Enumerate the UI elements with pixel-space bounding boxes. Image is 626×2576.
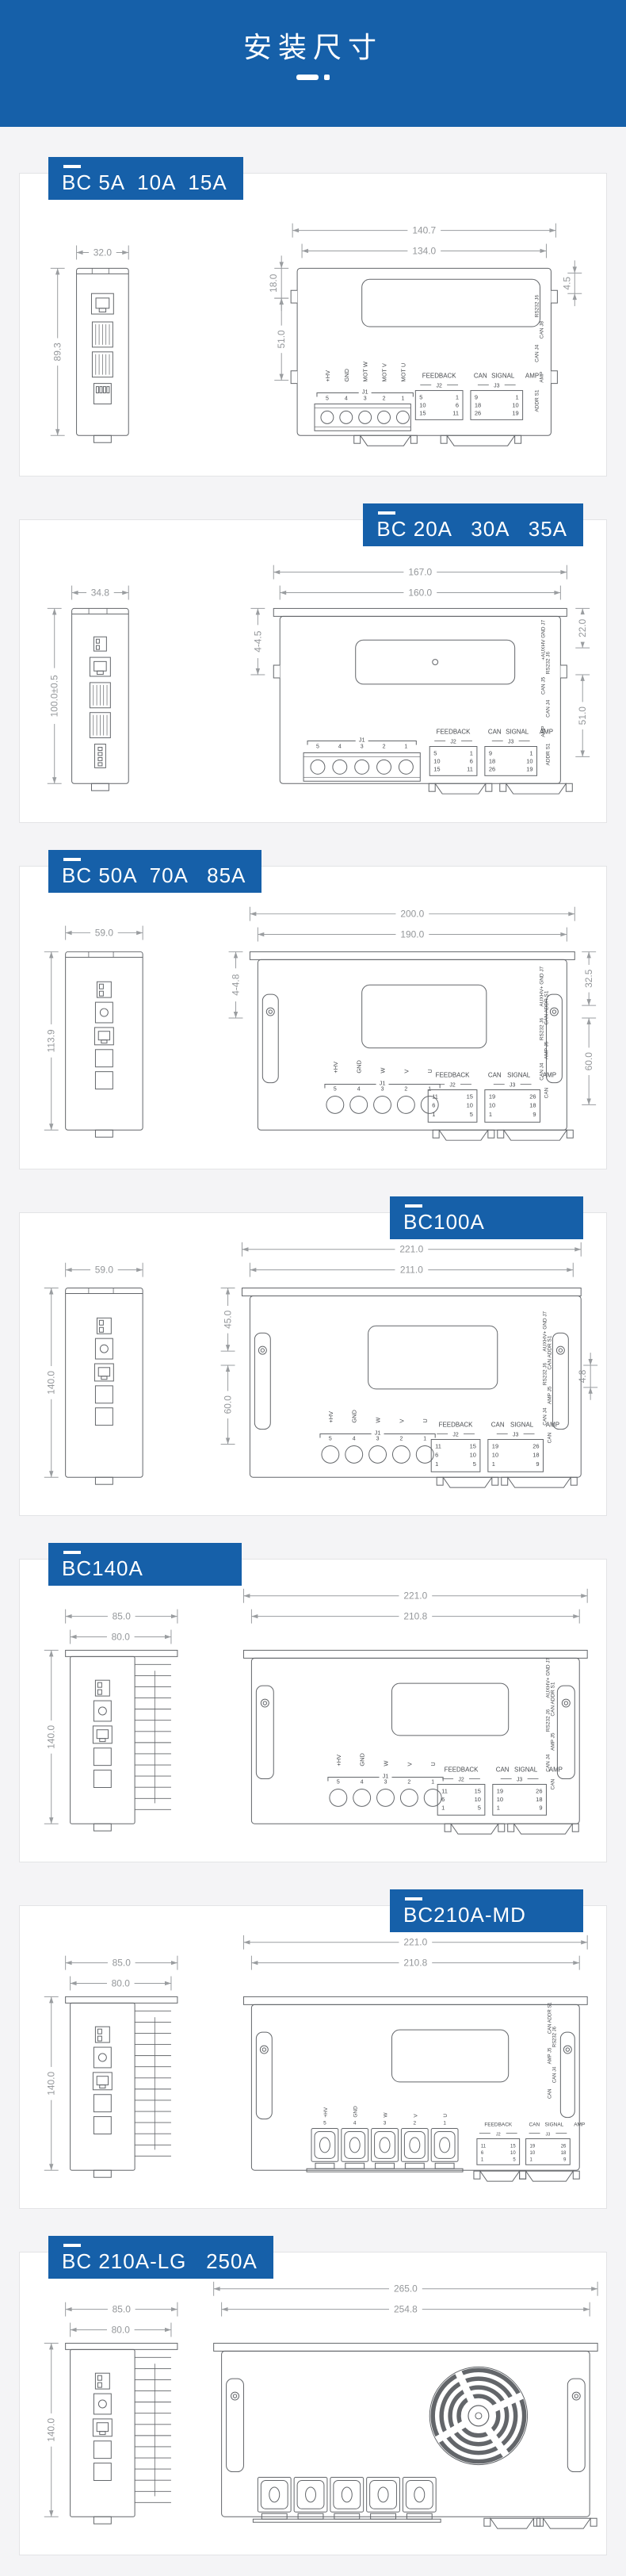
dim-arrow (581, 675, 585, 681)
power-connector (98, 2054, 106, 2061)
dsub-post (429, 783, 435, 791)
connector-window (95, 1050, 113, 1067)
dsub-post (441, 435, 447, 443)
connector-label: ADDR S1 (545, 743, 551, 765)
pin-header (98, 752, 102, 756)
dim-arrow (226, 1288, 230, 1295)
dsub-connector (490, 2518, 534, 2528)
pin-number: 15 (470, 1442, 476, 1449)
dim-label: 160.0 (408, 587, 432, 598)
dim-arrow (560, 570, 567, 574)
two-pin-connector (97, 2375, 101, 2380)
dim-arrow (49, 2164, 53, 2170)
pin-number: 19 (489, 1093, 495, 1100)
screw (556, 1346, 564, 1354)
terminal-name: V (406, 1763, 413, 1766)
pin-number: 5 (478, 1805, 481, 1812)
tag-dash-decoration (405, 1204, 422, 1208)
terminal-name: GND (353, 2106, 359, 2118)
pin-number: 19 (497, 1787, 503, 1794)
dsub-post (502, 1477, 508, 1485)
dim-arrow (49, 2510, 53, 2517)
pin-number: 10 (489, 1102, 495, 1109)
dim-arrow (251, 1614, 258, 1618)
terminal-screw (424, 1789, 441, 1806)
dim-arrow (554, 591, 560, 595)
connector-ref: J2 (449, 1083, 455, 1089)
pin-number: 18 (529, 1102, 536, 1109)
pin-number: 10 (497, 1796, 503, 1803)
dim-arrow (49, 1471, 53, 1477)
terminal-pin-number: 2 (383, 744, 386, 749)
screw (266, 1008, 274, 1016)
section-label: BC100A (403, 1210, 485, 1234)
terminal-pin-number: 1 (431, 1780, 434, 1786)
dim-arrow (581, 641, 585, 648)
power-connector (100, 1009, 108, 1016)
section-tag: BC140A (48, 1543, 242, 1586)
pin-number: 1 (456, 394, 459, 401)
terminal-pin-number: 1 (428, 1087, 431, 1093)
connector-title: SIGNAL (506, 729, 529, 736)
dim-label: 80.0 (112, 1977, 131, 1988)
dim-arrow (581, 750, 585, 756)
mount-ear (567, 2379, 585, 2471)
dsub-post (474, 2171, 480, 2179)
screw (261, 1349, 264, 1352)
screw (260, 2046, 268, 2054)
side-view-outline (66, 1288, 143, 1478)
dim-arrow (243, 1594, 250, 1598)
terminal-name: MOT U (399, 363, 407, 382)
power-connector (94, 2394, 111, 2414)
pin-number: 18 (489, 757, 495, 764)
pin-number: 1 (529, 749, 532, 756)
terminal-tab (345, 2163, 365, 2168)
power-connector (98, 2400, 106, 2408)
terminal-pin-number: 1 (443, 2121, 446, 2126)
dim-label: 140.0 (46, 2072, 57, 2096)
dim-arrow (136, 931, 143, 935)
connector-title: SIGNAL (507, 1072, 531, 1079)
terminal-ref: J1 (380, 1080, 386, 1087)
pin-number: 26 (536, 1787, 542, 1794)
pin-number: 5 (419, 394, 422, 401)
pin-number: 6 (470, 757, 473, 764)
dim-arrow (49, 1123, 53, 1130)
pin-number: 6 (456, 401, 459, 408)
rj45-connector (94, 1028, 113, 1045)
power-connector (94, 1701, 111, 1721)
power-connector (94, 2047, 111, 2068)
rj45-connector (97, 2423, 108, 2432)
pin-number: 18 (536, 1796, 542, 1803)
pin-number: 19 (512, 409, 518, 416)
screw (231, 2392, 239, 2400)
dim-label: 113.9 (46, 1029, 57, 1052)
section-tag: BC 5A 10A 15A (48, 157, 243, 200)
connector-label: CAN J4 (545, 1754, 551, 1772)
terminal-pin-number: 4 (345, 396, 348, 402)
dim-arrow (586, 1098, 590, 1104)
dim-arrow (71, 1635, 77, 1639)
dim-label: 140.7 (412, 225, 436, 236)
dim-arrow (573, 1961, 579, 1965)
rj45-connector (96, 298, 109, 308)
terminal-pin-number: 3 (364, 396, 367, 402)
front-mount-plate (250, 951, 574, 959)
terminal-name: +HV (335, 1755, 342, 1766)
connector-ref: J2 (496, 2132, 501, 2137)
terminal-pin-number: 3 (384, 2121, 387, 2126)
terminal-screw (340, 411, 353, 423)
rj45-connector (97, 1730, 108, 1739)
side-view-outline (66, 951, 143, 1130)
section-card-bc100a: BC100A J15+HV4GND3W2V1UFEEDBACKJ21115610… (19, 1212, 607, 1516)
dim-arrow (49, 1817, 53, 1824)
dim-arrow (49, 951, 53, 958)
section-card-bc140a: BC140A J15+HV4GND3W2V1UFEEDBACKJ21115610… (19, 1559, 607, 1862)
screw (550, 1008, 558, 1016)
section-label: BC 5A 10A 15A (62, 170, 227, 194)
dim-arrow (292, 228, 299, 232)
pin-number: 19 (492, 1442, 498, 1449)
terminal-hole (306, 2487, 316, 2502)
screw (559, 1349, 562, 1352)
tag-dash-decoration (378, 511, 395, 515)
terminal-pin-number: 3 (381, 1087, 384, 1093)
connector-title: CAN (488, 729, 502, 736)
dsub-post (486, 783, 492, 791)
terminal-name: +HV (332, 1062, 339, 1074)
section-drawing: J15+HV4GND3W2V1UFEEDBACKJ2111561015CANSI… (20, 867, 606, 1169)
section-label: BC140A (62, 1556, 143, 1580)
dsub-post (520, 2171, 526, 2179)
dim-arrow (55, 268, 59, 274)
screw (261, 1699, 269, 1707)
din-foot (95, 1477, 113, 1484)
terminal-hole (380, 2138, 390, 2153)
dim-arrow (165, 2328, 171, 2332)
terminal-hole (378, 2487, 388, 2502)
dsub-post (433, 1130, 439, 1138)
rj45-connector (93, 2073, 112, 2090)
connector-ref: J2 (450, 740, 456, 745)
dsub-post (572, 1824, 578, 1832)
connector-label: RS232 J6 (545, 651, 551, 674)
tag-dash-decoration (63, 165, 81, 168)
side-view-outline (71, 1656, 135, 1824)
screw (262, 2048, 265, 2051)
two-pin-connector (99, 991, 103, 996)
dsub-post (571, 1477, 577, 1485)
terminal-screw (350, 1096, 368, 1113)
dim-arrow (302, 249, 308, 253)
connector-label: CAN J4 (539, 1062, 544, 1081)
pin-number: 1 (492, 1460, 495, 1468)
terminal-screw (378, 411, 391, 423)
dim-arrow (574, 1247, 581, 1251)
mount-hook (551, 290, 557, 303)
pin-number: 9 (536, 1460, 539, 1468)
connector-label: CAN (544, 1087, 549, 1098)
dim-arrow (588, 1359, 592, 1365)
pin-number: 15 (433, 765, 440, 772)
pin-number: 10 (470, 1452, 476, 1459)
side-view-outline (71, 2349, 135, 2517)
power-terminal-block (367, 2478, 400, 2513)
terminal-name: V (413, 2114, 418, 2118)
mount-ear (254, 1333, 270, 1429)
dim-label: 85.0 (113, 1958, 132, 1969)
terminal-screw (326, 1096, 344, 1113)
dim-arrow (214, 2287, 220, 2291)
dim-label: 34.8 (91, 587, 110, 598)
power-terminal-block (404, 2132, 425, 2159)
pin-number: 11 (481, 2144, 487, 2149)
dim-arrow (52, 777, 56, 783)
rj45-connector (93, 1726, 112, 1743)
connector-label: CAN J8 (539, 320, 544, 339)
connector-ref: J2 (436, 384, 441, 389)
pin-number: 6 (441, 1796, 445, 1803)
display-window (356, 640, 515, 684)
front-mount-plate (243, 1996, 587, 2004)
pin-number: 18 (532, 1452, 539, 1459)
dim-arrow (573, 266, 577, 273)
terminal-name: MOT W (362, 361, 369, 381)
display-window (391, 1683, 508, 1736)
dim-arrow (549, 228, 555, 232)
connector-title: CAN (488, 1072, 502, 1079)
pin-number: 5 (513, 2158, 516, 2163)
dim-arrow (49, 1996, 53, 2003)
dsub-connector (435, 783, 486, 794)
pin-number: 9 (539, 1805, 542, 1812)
title-underline-decoration (296, 75, 330, 80)
terminal-pin-number: 3 (361, 744, 364, 749)
connector-label: CAN (548, 2088, 552, 2099)
two-pin-connector (97, 2029, 101, 2034)
pin-number: 1 (470, 749, 473, 756)
terminal-tab (334, 2513, 360, 2519)
dim-label: 221.0 (403, 1590, 427, 1602)
section-drawing: J154321FEEDBACKJ2511061511CANSIGNALAMPJ3… (20, 520, 606, 822)
terminal-screw (374, 1096, 391, 1113)
dim-label: 18.0 (268, 274, 279, 293)
connector-ref: J3 (517, 1778, 522, 1783)
dim-arrow (583, 2307, 590, 2311)
power-connector (95, 1002, 113, 1023)
terminal-pin-number: 4 (353, 2121, 357, 2126)
pin-number: 10 (433, 757, 440, 764)
connector-window (94, 1748, 111, 1766)
page-title: 安装尺寸 (243, 33, 383, 62)
dim-label: 167.0 (408, 567, 432, 578)
terminal-pin-number: 1 (404, 744, 407, 749)
dim-arrow (258, 932, 264, 936)
power-terminal-block (258, 2478, 291, 2513)
dip-switch (96, 387, 98, 393)
dim-arrow (280, 262, 284, 268)
terminal-name: U (429, 1762, 437, 1766)
dsub-connector (504, 1130, 567, 1140)
connector-label: CAN J4 (542, 1407, 548, 1426)
connector-label: RS232 J6 (542, 1362, 548, 1385)
rj45-connector (91, 293, 113, 314)
front-mount-plate (242, 1288, 581, 1296)
dim-arrow (52, 608, 56, 614)
terminal-name: +HV (323, 2107, 329, 2117)
screw (263, 1701, 266, 1705)
power-terminal-block (406, 2480, 433, 2509)
dsub-connector (439, 1130, 488, 1140)
dim-arrow (256, 668, 260, 675)
dsub-connector (506, 783, 567, 794)
front-mount-plate (243, 1650, 587, 1658)
terminal-tab (376, 2163, 395, 2168)
terminal-tab (371, 2513, 396, 2519)
page: 安装尺寸 BC 5A 10A 15A J15+HV4GND3MOT W2MOT … (0, 0, 626, 2576)
pin-number: 11 (432, 1093, 438, 1100)
connector-window (94, 2463, 111, 2481)
dim-arrow (66, 1961, 72, 1965)
terminal-pin-number: 1 (423, 1436, 426, 1441)
rj45-connector (101, 1376, 107, 1380)
terminal-screw (377, 760, 391, 774)
connector-title: CAN (491, 1422, 505, 1429)
dip-switch (100, 387, 102, 393)
terminal-hole (410, 2138, 420, 2153)
connector-label: AMP (539, 372, 544, 383)
terminal-name: W (375, 1417, 382, 1423)
connector-ref: J2 (458, 1778, 464, 1783)
section-label: BC 50A 70A 85A (62, 863, 246, 887)
power-terminal-block (261, 2480, 288, 2509)
pin-header (98, 747, 102, 750)
dim-label: 85.0 (113, 2304, 132, 2315)
terminal-strip (303, 752, 420, 781)
dim-label: 200.0 (400, 909, 424, 920)
section-drawing: 5+HV4GND3W2V1UFEEDBACKJ2111561015CANSIGN… (20, 1906, 606, 2208)
pin-number: 1 (497, 1805, 500, 1812)
terminal-hole (319, 2138, 330, 2153)
dim-label: 254.8 (394, 2304, 418, 2315)
dim-arrow (226, 1345, 230, 1351)
front-mount-plate (214, 2343, 597, 2351)
section-tag: BC210A-MD (390, 1889, 583, 1932)
connector-label: AMP J5 (547, 1386, 552, 1404)
connector-title: FEEDBACK (445, 1766, 479, 1774)
mount-ear (557, 1686, 574, 1778)
connector-ref: J3 (513, 1433, 518, 1438)
power-terminal-block (330, 2478, 364, 2513)
pin-number: 11 (441, 1787, 448, 1794)
section-tag: BC 20A 30A 35A (363, 503, 583, 546)
connector-title: SIGNAL (514, 1766, 538, 1774)
dim-arrow (256, 608, 260, 614)
pin-number: 11 (452, 409, 459, 416)
dim-arrow (540, 249, 546, 253)
underline-dot (324, 75, 330, 80)
display-window (391, 2030, 508, 2082)
screw (552, 1010, 555, 1013)
connector-label: RS232 J6 (539, 1017, 544, 1040)
pin-number: 10 (467, 1102, 473, 1109)
connector-label: RS232 J6 (545, 1709, 551, 1732)
connector-ref: J2 (452, 1433, 458, 1438)
two-pin-connector (97, 1682, 101, 1687)
dim-label: 45.0 (223, 1310, 234, 1329)
terminal-pin-number: 2 (414, 2121, 417, 2126)
terminal-name: GND (356, 1059, 363, 1073)
pin-number: 6 (481, 2151, 484, 2156)
dsub-connector (447, 435, 515, 446)
pin-number: 1 (530, 2158, 533, 2163)
din-foot (94, 435, 111, 442)
terminal-screw (392, 1445, 410, 1463)
terminal-hole (349, 2138, 360, 2153)
dim-arrow (560, 932, 567, 936)
dim-label: 59.0 (95, 1265, 114, 1276)
two-pin-connector (97, 2383, 101, 2387)
pin-number: 1 (515, 394, 518, 401)
connector-title: SIGNAL (545, 2122, 564, 2128)
screw (572, 2392, 580, 2400)
rj45-connector (90, 657, 110, 676)
terminal-name: GND (351, 1409, 358, 1422)
terminal-base (253, 2519, 441, 2522)
dsub-post (590, 2518, 597, 2526)
connector-window (94, 2117, 111, 2134)
dim-arrow (573, 293, 577, 300)
dim-arrow (586, 999, 590, 1005)
terminal-name: V (403, 1070, 410, 1074)
power-terminal-block (315, 2132, 335, 2159)
dsub-post (492, 1477, 498, 1485)
terminal-screw (321, 411, 334, 423)
dim-arrow (171, 2307, 177, 2311)
dim-arrow (49, 1650, 53, 1656)
screw (574, 2394, 578, 2398)
dim-arrow (165, 1981, 171, 1985)
pin-number: 1 (481, 2158, 484, 2163)
dim-arrow (273, 570, 280, 574)
two-pin-connector (99, 1320, 103, 1325)
dim-label: 51.0 (577, 706, 588, 725)
dim-label: 32.5 (583, 969, 594, 988)
dim-arrow (573, 1614, 579, 1618)
pin-number: 9 (563, 2158, 567, 2163)
pin-number: 10 (526, 757, 532, 764)
display-window (362, 279, 540, 327)
rj45-connector (94, 1364, 113, 1381)
section-tag: BC100A (390, 1196, 583, 1239)
section-card-bc210a-md: BC210A-MD 5+HV4GND3W2V1UFEEDBACKJ2111561… (19, 1905, 607, 2209)
circle (466, 2403, 491, 2429)
dim-arrow (234, 951, 238, 958)
dim-label: 4.8 (577, 1369, 588, 1383)
connector-title: SIGNAL (510, 1422, 534, 1429)
terminal-screw (333, 760, 347, 774)
dsub-post (500, 783, 506, 791)
terminal-pin-number: 4 (353, 1436, 356, 1441)
dim-label: 89.3 (52, 343, 63, 362)
connector-label: AMP (540, 726, 546, 737)
terminal-name: U (426, 1069, 433, 1073)
terminal-pin-number: 3 (376, 1436, 380, 1441)
mount-ear (256, 1686, 273, 1778)
